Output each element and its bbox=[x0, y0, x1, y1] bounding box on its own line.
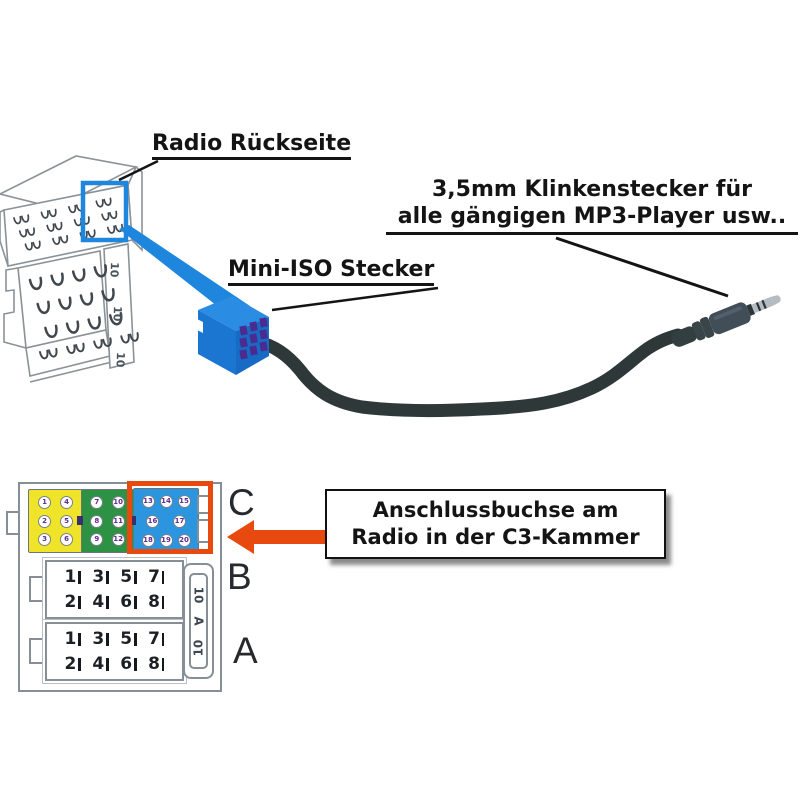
side-strip-label: 10 bbox=[192, 639, 206, 656]
radio-back-label: Radio Rückseite bbox=[152, 131, 351, 160]
callout-box: Anschlussbuchse am Radio in der C3-Kamme… bbox=[325, 489, 666, 559]
svg-text:10: 10 bbox=[107, 262, 121, 278]
jack-label: 3,5mm Klinkenstecker für alle gängigen M… bbox=[386, 176, 798, 235]
pin-slot bbox=[106, 596, 109, 609]
pin-number: 7 bbox=[148, 629, 160, 649]
pin-number: 8 bbox=[148, 592, 160, 612]
miniiso-label-pointer-line bbox=[272, 288, 438, 310]
pin: 6 bbox=[60, 533, 73, 546]
orange-arrow bbox=[227, 520, 327, 554]
pin-number: 1 bbox=[65, 629, 77, 649]
pin-slot bbox=[78, 596, 81, 609]
pin-slot bbox=[106, 658, 109, 671]
iso-section-b: 1 3 5 7 2 4 6 8 bbox=[45, 560, 184, 619]
pin-number: 5 bbox=[120, 567, 132, 587]
pin: 7 bbox=[90, 496, 103, 509]
pin: 2 bbox=[38, 515, 51, 528]
connector-pins bbox=[239, 317, 267, 359]
pin: 9 bbox=[90, 533, 103, 546]
pin-slot bbox=[78, 571, 81, 584]
pin-number: 6 bbox=[120, 654, 132, 674]
pin-number: 6 bbox=[120, 592, 132, 612]
side-strip-label: A bbox=[191, 616, 205, 625]
pin-number: 4 bbox=[92, 592, 104, 612]
iso-side-strip: 10 A 10 bbox=[183, 563, 214, 679]
pin: 4 bbox=[60, 496, 73, 509]
pin-number: 3 bbox=[92, 567, 104, 587]
pin: 12 bbox=[112, 533, 125, 546]
pin-number: 2 bbox=[65, 654, 77, 674]
pin: 5 bbox=[60, 515, 73, 528]
pin-number: 5 bbox=[120, 629, 132, 649]
pin: 11 bbox=[112, 515, 125, 528]
c3-orange-frame bbox=[127, 481, 213, 554]
pin-slot bbox=[106, 633, 109, 646]
iso-section-a: 1 3 5 7 2 4 6 8 bbox=[45, 622, 184, 681]
pin-slot bbox=[162, 571, 165, 584]
pin: 3 bbox=[38, 533, 51, 546]
pin: 10 bbox=[112, 496, 125, 509]
adapter-cable bbox=[258, 335, 678, 411]
iso-section-c1: 1 4 2 5 3 6 bbox=[28, 489, 83, 553]
pin-slot bbox=[134, 596, 137, 609]
radio-strip-pins bbox=[14, 197, 123, 251]
jack-label-line2: alle gängigen MP3-Player usw.. bbox=[386, 203, 798, 230]
mini-iso-connector bbox=[195, 296, 269, 375]
pin-number: 1 bbox=[65, 567, 77, 587]
jack-label-line1: 3,5mm Klinkenstecker für bbox=[386, 176, 798, 203]
pin-number: 7 bbox=[148, 567, 160, 587]
diagram-page: { "labels": { "radio_back": "Radio Rücks… bbox=[0, 0, 800, 800]
pin-slot bbox=[106, 571, 109, 584]
pin-slot bbox=[162, 633, 165, 646]
radio-block-pins bbox=[30, 264, 123, 339]
pin-number: 8 bbox=[148, 654, 160, 674]
jack-tip bbox=[771, 294, 782, 306]
row-letter-a: A bbox=[233, 630, 258, 672]
radio-lower-pins bbox=[40, 333, 139, 359]
pin-number: 4 bbox=[92, 654, 104, 674]
side-strip-label: 10 bbox=[192, 586, 206, 603]
pin-slot bbox=[162, 596, 165, 609]
callout-line2: Radio in der C3-Kammer bbox=[351, 524, 639, 551]
pin-slot bbox=[134, 633, 137, 646]
radio-label-pointer-line bbox=[119, 161, 158, 180]
pin-number: 3 bbox=[92, 629, 104, 649]
pin-slot bbox=[78, 633, 81, 646]
svg-text:10: 10 bbox=[110, 306, 124, 322]
mini-iso-label: Mini-ISO Stecker bbox=[228, 257, 434, 286]
pin-number: 2 bbox=[65, 592, 77, 612]
callout-line1: Anschlussbuchse am bbox=[373, 497, 619, 524]
svg-text:10: 10 bbox=[113, 352, 127, 368]
blue-highlight-rect bbox=[83, 183, 126, 240]
pin-slot bbox=[134, 571, 137, 584]
radio-strip-labels: 10 10 10 bbox=[107, 262, 127, 368]
connector-notch bbox=[195, 318, 203, 333]
row-letter-c: C bbox=[228, 482, 255, 524]
pin-slot bbox=[162, 658, 165, 671]
keying-nub bbox=[77, 516, 83, 525]
pin-slot bbox=[134, 658, 137, 671]
jack-metal-shaft bbox=[751, 297, 774, 313]
jack-plug bbox=[668, 288, 784, 352]
pin-slot bbox=[78, 658, 81, 671]
pin: 8 bbox=[90, 515, 103, 528]
row-letter-b: B bbox=[227, 556, 252, 598]
jack-label-pointer-line bbox=[556, 238, 728, 296]
radio-rear-drawing bbox=[0, 0, 142, 382]
pin: 1 bbox=[38, 496, 51, 509]
